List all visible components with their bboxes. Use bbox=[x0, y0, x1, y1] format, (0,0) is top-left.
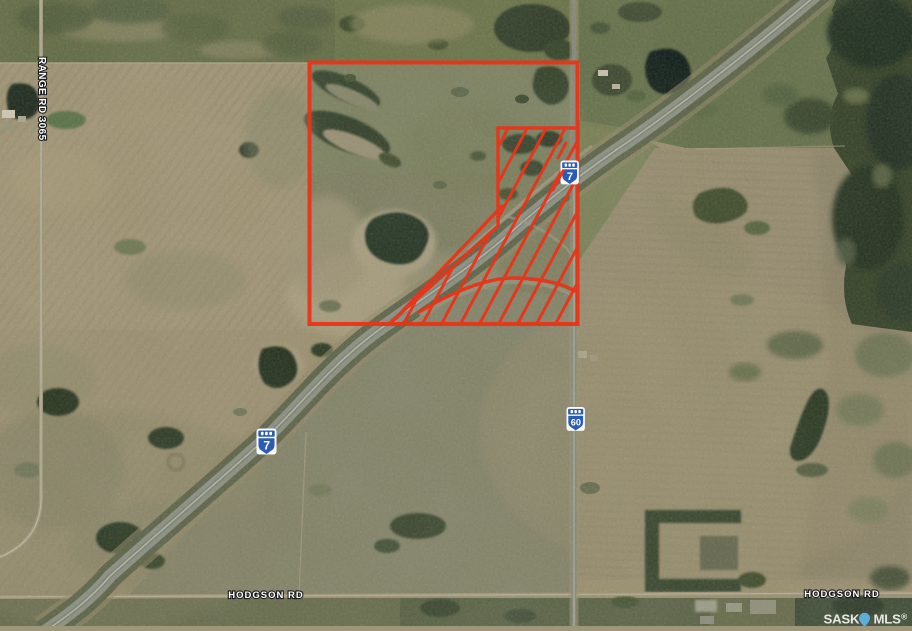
svg-text:7: 7 bbox=[263, 439, 270, 453]
svg-text:RANGE RD 3065: RANGE RD 3065 bbox=[36, 57, 47, 141]
svg-text:SASK: SASK bbox=[824, 612, 861, 627]
svg-text:HODGSON RD: HODGSON RD bbox=[228, 590, 303, 601]
svg-text:HODGSON RD: HODGSON RD bbox=[804, 589, 879, 600]
svg-text:60: 60 bbox=[571, 418, 581, 428]
svg-text:®: ® bbox=[901, 612, 908, 622]
svg-text:MLS: MLS bbox=[874, 612, 902, 627]
svg-text:7: 7 bbox=[567, 171, 573, 183]
